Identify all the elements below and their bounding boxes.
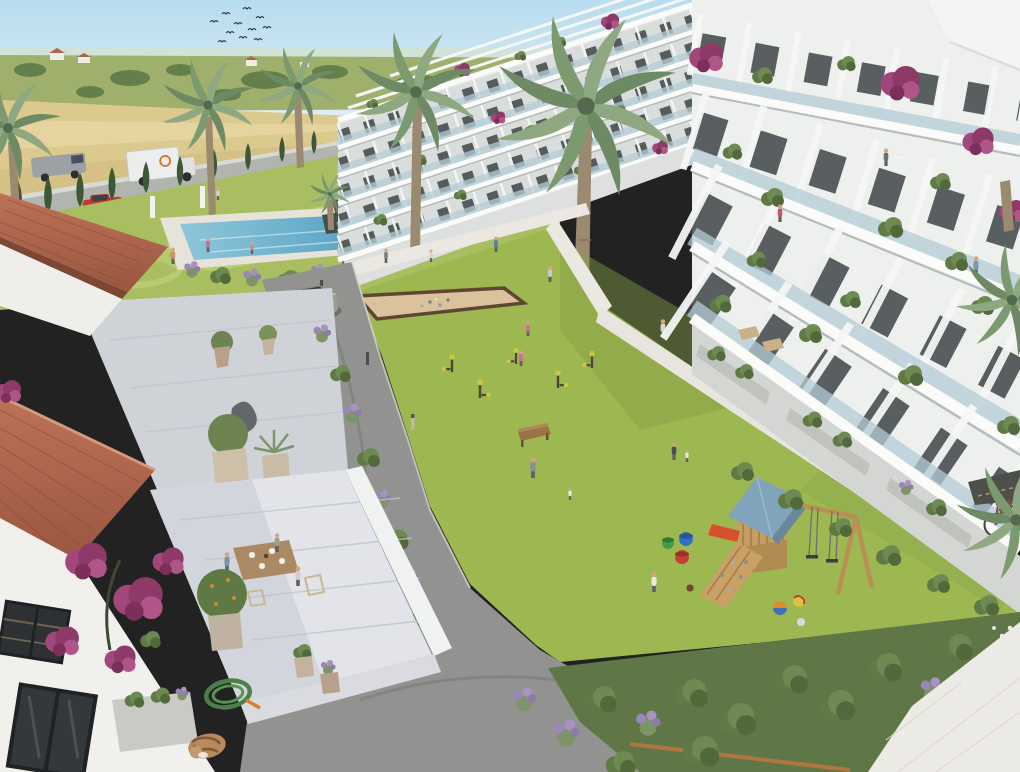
crouching-boy bbox=[651, 572, 656, 592]
house-door bbox=[8, 685, 96, 772]
gate-pillar bbox=[200, 186, 205, 208]
render-image bbox=[0, 0, 1020, 772]
gate-pillar bbox=[150, 196, 155, 218]
potted-citrus-tree bbox=[197, 569, 247, 651]
sand-toy bbox=[687, 585, 694, 592]
path-bollard bbox=[366, 352, 369, 365]
scene-canvas bbox=[0, 0, 1020, 772]
